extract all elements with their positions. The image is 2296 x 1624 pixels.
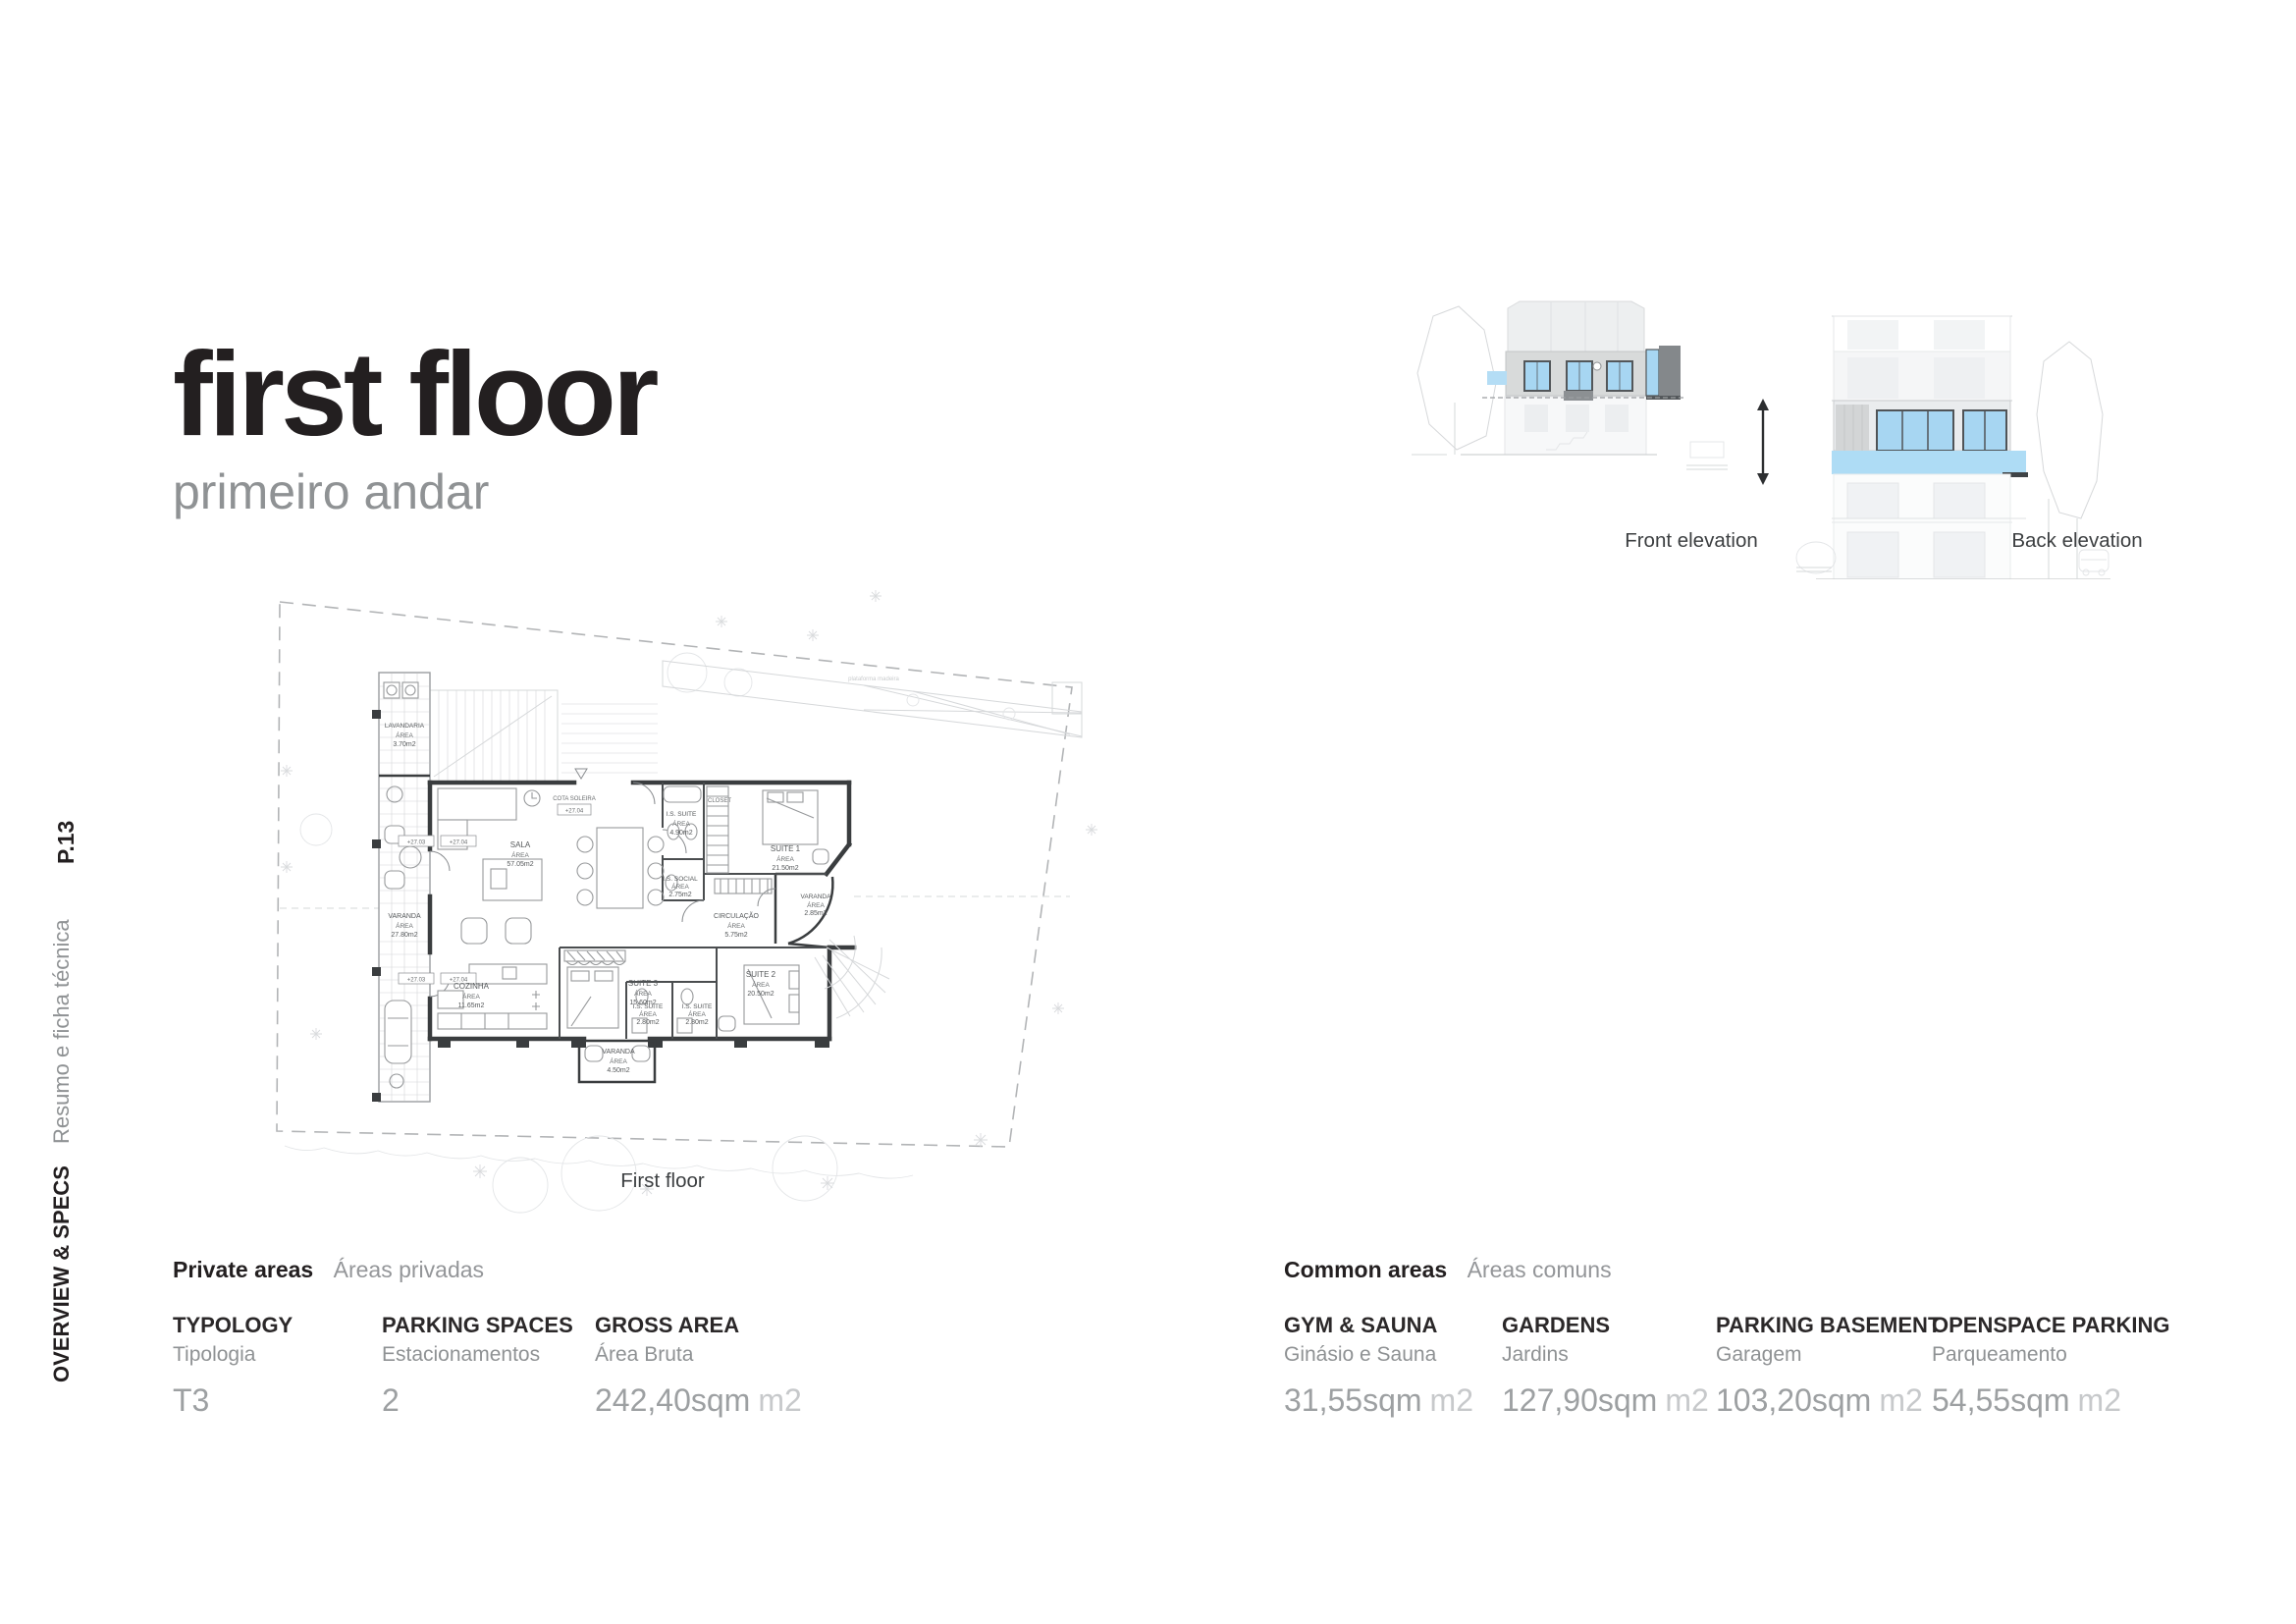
tree-icon bbox=[1412, 306, 1496, 455]
room-label-is-suite-b: I.S. SUITE ÁREA 2.80m2 bbox=[682, 1003, 713, 1026]
svg-text:SUITE 3: SUITE 3 bbox=[628, 979, 659, 988]
section-sublabel: Resumo e ficha técnica bbox=[49, 919, 74, 1160]
svg-text:+27.04: +27.04 bbox=[565, 809, 584, 815]
svg-text:4.50m2: 4.50m2 bbox=[607, 1067, 629, 1074]
parking-spaces-value: 2 bbox=[382, 1382, 573, 1419]
svg-text:SUITE 2: SUITE 2 bbox=[746, 970, 776, 979]
svg-text:11.65m2: 11.65m2 bbox=[458, 1002, 485, 1009]
svg-text:4.90m2: 4.90m2 bbox=[669, 830, 692, 837]
svg-text:SALA: SALA bbox=[510, 840, 531, 849]
svg-text:SUITE 1: SUITE 1 bbox=[771, 844, 801, 853]
svg-text:3.70m2: 3.70m2 bbox=[393, 741, 415, 748]
window-group bbox=[1877, 410, 1953, 451]
svg-text:I.S. SUITE: I.S. SUITE bbox=[667, 811, 697, 818]
svg-text:+27.03: +27.03 bbox=[407, 840, 426, 846]
page-number: P.13 bbox=[53, 791, 80, 864]
gross-area-value: 242,40sqmm2 bbox=[595, 1382, 802, 1419]
svg-text:VARANDA: VARANDA bbox=[388, 913, 421, 920]
private-areas-subtitle: Áreas privadas bbox=[334, 1257, 484, 1282]
private-areas-block: Private areas Áreas privadas TYPOLOGY Ti… bbox=[173, 1257, 484, 1450]
svg-text:CIRCULAÇÃO: CIRCULAÇÃO bbox=[714, 911, 759, 920]
svg-text:21.50m2: 21.50m2 bbox=[772, 865, 798, 872]
back-elevation-caption: Back elevation bbox=[2011, 529, 2142, 552]
room-label-circulacao: CIRCULAÇÃO ÁREA 5.75m2 bbox=[714, 911, 759, 939]
svg-text:ÁREA: ÁREA bbox=[511, 850, 529, 859]
dining-table bbox=[577, 828, 664, 908]
svg-text:2.80m2: 2.80m2 bbox=[685, 1019, 708, 1026]
svg-text:57.05m2: 57.05m2 bbox=[507, 861, 533, 868]
vent-icon bbox=[1593, 362, 1601, 370]
common-areas-block: Common areas Áreas comuns GYM & SAUNA Gi… bbox=[1284, 1257, 1612, 1450]
bush-icon bbox=[1796, 542, 1836, 573]
svg-text:+27.03: +27.03 bbox=[407, 978, 426, 984]
front-elevation-caption: Front elevation bbox=[1625, 529, 1758, 552]
svg-text:ÁREA: ÁREA bbox=[396, 731, 413, 739]
common-areas-header: Common areas Áreas comuns bbox=[1284, 1257, 1612, 1283]
section-label: OVERVIEW & SPECS bbox=[49, 1165, 74, 1382]
spec-gym-sauna: GYM & SAUNA Ginásio e Sauna 31,55sqmm2 bbox=[1284, 1313, 1473, 1419]
page-subtitle: primeiro andar bbox=[173, 463, 655, 520]
svg-text:2.75m2: 2.75m2 bbox=[668, 892, 691, 898]
svg-text:ÁREA: ÁREA bbox=[671, 882, 689, 891]
spec-parking-spaces: PARKING SPACES Estacionamentos 2 bbox=[382, 1313, 573, 1419]
svg-text:20.50m2: 20.50m2 bbox=[747, 991, 774, 998]
svg-text:ÁREA: ÁREA bbox=[776, 854, 794, 863]
svg-text:ÁREA: ÁREA bbox=[672, 819, 690, 828]
floor-plan: plataforma madeira bbox=[226, 535, 1158, 1242]
brochure-page: first floor primeiro andar P.13 OVERVIEW… bbox=[0, 0, 2296, 1624]
svg-text:I.S. SUITE: I.S. SUITE bbox=[682, 1003, 713, 1010]
openspace-parking-value: 54,55sqmm2 bbox=[1932, 1382, 2169, 1419]
blue-band bbox=[1487, 371, 1507, 385]
parking-basement-value: 103,20sqmm2 bbox=[1716, 1382, 1941, 1419]
room-label-is-suite-a: I.S. SUITE ÁREA 2.80m2 bbox=[633, 1003, 664, 1026]
common-areas-title: Common areas bbox=[1284, 1257, 1447, 1282]
room-label-varanda-right: VARANDA ÁREA 2.85m2 bbox=[801, 893, 832, 917]
svg-text:ÁREA: ÁREA bbox=[807, 900, 825, 909]
svg-text:27.80m2: 27.80m2 bbox=[391, 932, 417, 939]
common-areas-subtitle: Áreas comuns bbox=[1468, 1257, 1612, 1282]
private-areas-header: Private areas Áreas privadas bbox=[173, 1257, 484, 1283]
spec-typology: TYPOLOGY Tipologia T3 bbox=[173, 1313, 293, 1419]
suite3-wardrobe bbox=[564, 950, 625, 965]
dark-volume bbox=[1659, 346, 1681, 396]
svg-text:ÁREA: ÁREA bbox=[634, 989, 652, 998]
svg-text:2.85m2: 2.85m2 bbox=[804, 910, 827, 917]
gardens-value: 127,90sqmm2 bbox=[1502, 1382, 1709, 1419]
suite3-bed bbox=[567, 967, 618, 1028]
typology-value: T3 bbox=[173, 1382, 293, 1419]
spec-openspace-parking: OPENSPACE PARKING Parqueamento 54,55sqmm… bbox=[1932, 1313, 2169, 1419]
svg-text:ÁREA: ÁREA bbox=[688, 1009, 706, 1018]
page-title: first floor bbox=[173, 334, 655, 454]
svg-text:5.75m2: 5.75m2 bbox=[724, 932, 747, 939]
svg-text:ÁREA: ÁREA bbox=[610, 1056, 627, 1065]
svg-text:+27.04: +27.04 bbox=[450, 840, 468, 846]
section-rail: OVERVIEW & SPECS Resumo e ficha técnica bbox=[49, 925, 75, 1382]
spec-gardens: GARDENS Jardins 127,90sqmm2 bbox=[1502, 1313, 1709, 1419]
svg-text:ÁREA: ÁREA bbox=[396, 921, 413, 930]
platform-note: plataforma madeira bbox=[848, 677, 899, 682]
room-label-varanda-bottom: VARANDA ÁREA 4.50m2 bbox=[602, 1049, 635, 1074]
svg-text:I.S. SOCIAL: I.S. SOCIAL bbox=[663, 876, 698, 883]
balcony-band bbox=[1832, 451, 2026, 474]
svg-text:VARANDA: VARANDA bbox=[602, 1049, 635, 1056]
svg-text:LAVANDARIA: LAVANDARIA bbox=[385, 723, 425, 730]
svg-text:ÁREA: ÁREA bbox=[727, 921, 745, 930]
room-label-suite3: SUITE 3 ÁREA 15.60m2 bbox=[628, 979, 659, 1006]
svg-text:COZINHA: COZINHA bbox=[454, 982, 490, 991]
closet-label: CLOSET bbox=[708, 798, 731, 804]
plan-caption: First floor bbox=[620, 1169, 705, 1192]
svg-text:2.80m2: 2.80m2 bbox=[636, 1019, 659, 1026]
private-areas-title: Private areas bbox=[173, 1257, 313, 1282]
threshold-level: COTA SOLEIRA +27.04 bbox=[553, 796, 596, 815]
elevations: Front elevation Back elevation bbox=[1404, 255, 2189, 579]
svg-text:COTA SOLEIRA: COTA SOLEIRA bbox=[553, 796, 596, 802]
height-arrow-icon bbox=[1757, 399, 1769, 485]
svg-text:VARANDA: VARANDA bbox=[801, 893, 832, 900]
svg-text:ÁREA: ÁREA bbox=[752, 980, 770, 989]
spec-parking-basement: PARKING BASEMENT Garagem 103,20sqmm2 bbox=[1716, 1313, 1941, 1419]
title-block: first floor primeiro andar bbox=[173, 334, 655, 520]
upper-terrace: plataforma madeira bbox=[430, 661, 1082, 783]
balcony-railing bbox=[1564, 391, 1593, 401]
sofa bbox=[438, 788, 516, 820]
svg-text:ÁREA: ÁREA bbox=[462, 992, 480, 1001]
entrance-arrow-icon bbox=[575, 769, 587, 779]
svg-text:I.S. SUITE: I.S. SUITE bbox=[633, 1003, 664, 1010]
spec-gross-area: GROSS AREA Área Bruta 242,40sqmm2 bbox=[595, 1313, 802, 1419]
room-label-sala: SALA ÁREA 57.05m2 bbox=[507, 840, 533, 868]
furniture bbox=[438, 786, 828, 1061]
car-icon bbox=[2079, 550, 2109, 575]
front-elevation bbox=[1412, 301, 1728, 469]
room-label-suite1: SUITE 1 ÁREA 21.50m2 bbox=[771, 844, 801, 872]
gym-sauna-value: 31,55sqmm2 bbox=[1284, 1382, 1473, 1419]
svg-text:ÁREA: ÁREA bbox=[639, 1009, 657, 1018]
sun-lounger bbox=[385, 1001, 411, 1063]
